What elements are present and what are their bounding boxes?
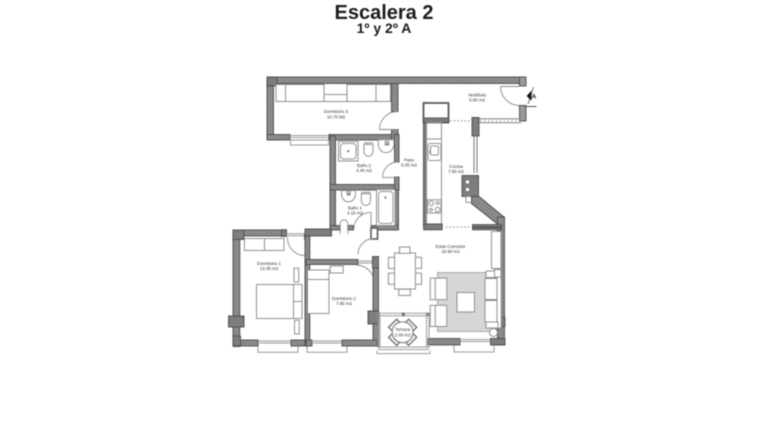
svg-text:5.05 m2: 5.05 m2	[401, 163, 417, 168]
svg-text:Terraza: Terraza	[395, 327, 410, 332]
svg-text:5.90 m2: 5.90 m2	[469, 98, 485, 103]
svg-text:2.00 m2: 2.00 m2	[395, 333, 411, 338]
svg-text:10.70 M2: 10.70 M2	[327, 114, 346, 119]
svg-text:A: A	[531, 93, 536, 100]
svg-text:19.90 m2: 19.90 m2	[441, 249, 460, 254]
svg-text:13.35 m2: 13.35 m2	[260, 266, 279, 271]
svg-text:4.15 m2: 4.15 m2	[347, 211, 363, 216]
svg-text:7.80 m2: 7.80 m2	[336, 301, 352, 306]
svg-text:1º y 2º A: 1º y 2º A	[357, 20, 412, 36]
svg-text:7.80 m2: 7.80 m2	[448, 169, 464, 174]
svg-text:4.45 m2: 4.45 m2	[356, 168, 372, 173]
